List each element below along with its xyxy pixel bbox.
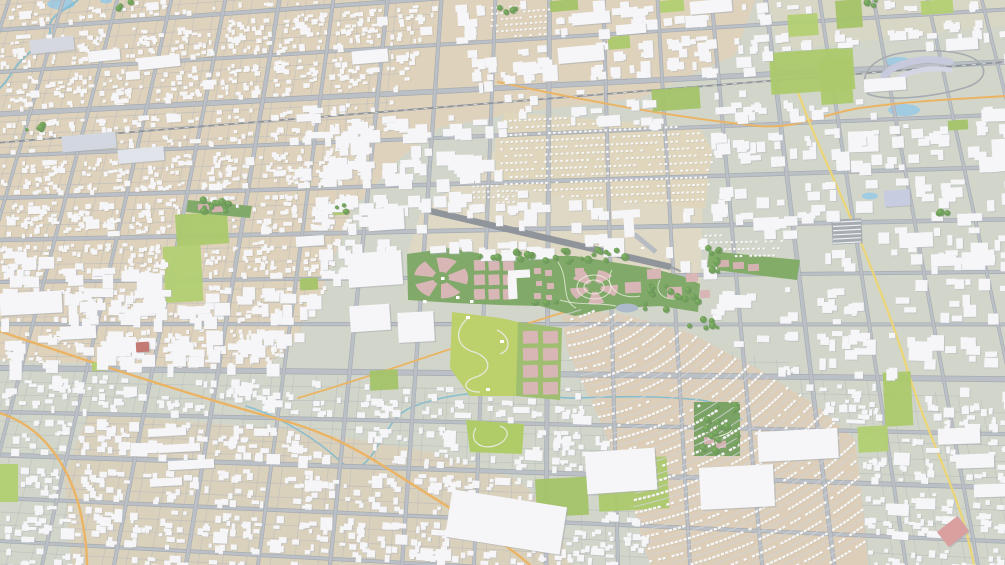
city-3d-map-render	[0, 0, 1005, 565]
city-3d-map-viewport	[0, 0, 1005, 565]
haze-overlay	[0, 0, 1005, 565]
atmosphere	[0, 0, 1005, 565]
